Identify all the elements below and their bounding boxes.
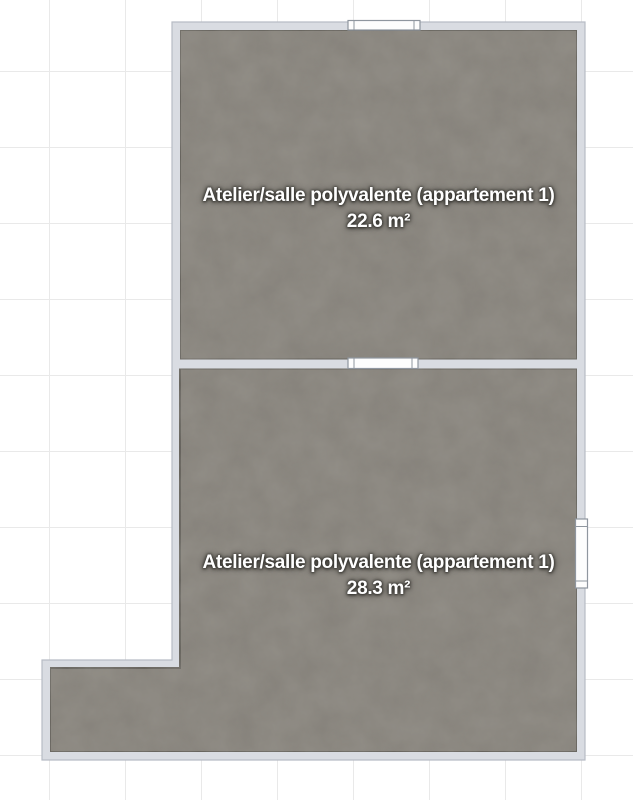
room-floor-bottom [50,369,577,753]
window-middle-icon [348,358,418,369]
room-floor-top [180,30,577,360]
floor-plan [0,0,633,800]
window-right-icon [576,519,588,588]
window-top-icon [348,21,420,31]
floorplan-canvas: Atelier/salle polyvalente (appartement 1… [0,0,633,800]
